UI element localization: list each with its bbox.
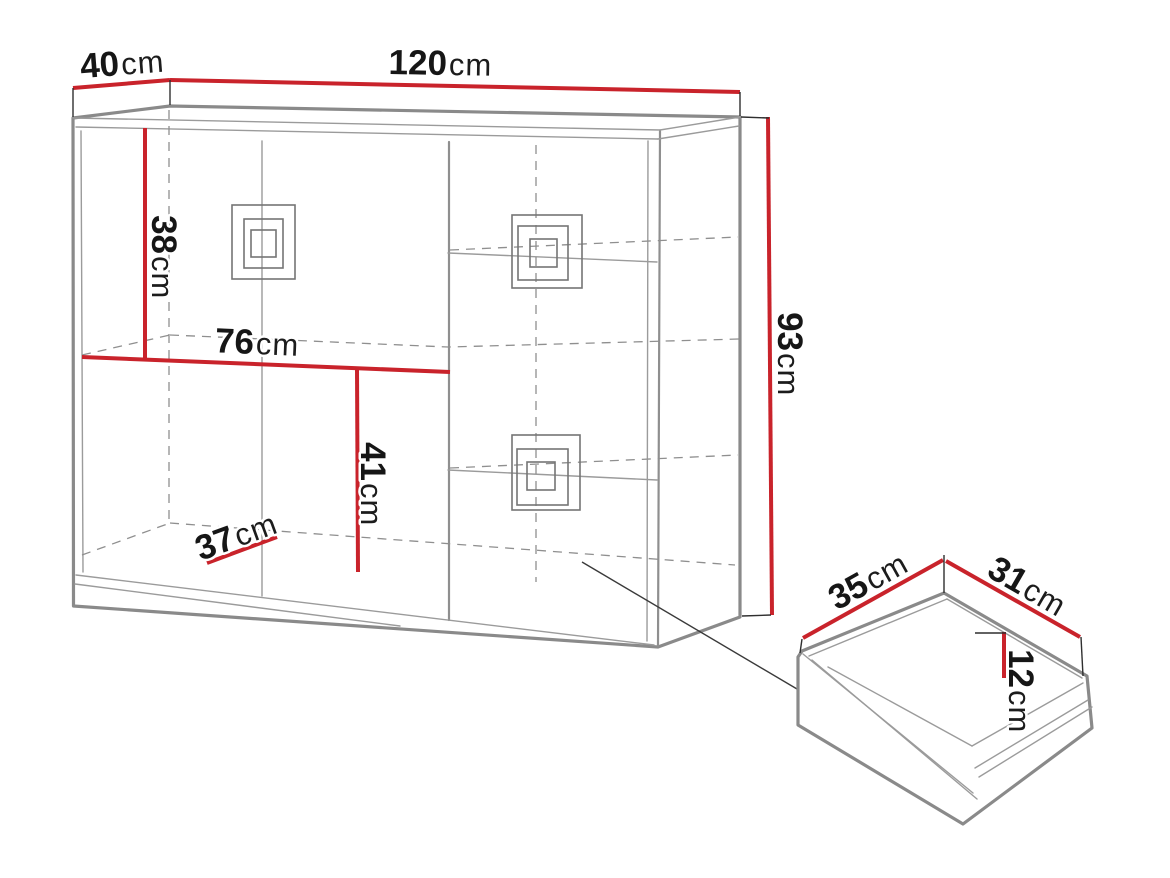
dimension-label-drawer-width: 35 cm (822, 543, 915, 618)
dimension-label-drawer-height: 12 cm (1001, 649, 1040, 733)
door-handle (232, 205, 295, 279)
dimension-lines (73, 80, 1080, 678)
drawer-leader-line (582, 562, 797, 689)
drawer-seam-1 (448, 253, 657, 262)
handle-middle-square (517, 449, 568, 505)
drawer-front-panel-inner-edge (812, 660, 977, 799)
handle-middle-square (244, 219, 283, 268)
handle-inner-square (251, 230, 276, 257)
dimension-label-drawer-depth: 31 cm (981, 549, 1073, 625)
dimension-value: 120 (388, 43, 447, 83)
diagram-canvas: 40 cm 120 cm 38 cm 76 cm 41 cm 37 cm 93 … (0, 0, 1170, 878)
dimension-label-left-section: 76 cm (214, 321, 300, 364)
hidden-edges (82, 110, 740, 582)
dimension-value: 93 (770, 312, 809, 351)
dimension-value: 40 (79, 44, 121, 86)
drawer-detail (798, 593, 1092, 824)
dimension-labels: 40 cm 120 cm 38 cm 76 cm 41 cm 37 cm 93 … (79, 41, 1074, 734)
dimension-unit: cm (1002, 690, 1037, 733)
drawer-left-rim-inner (809, 599, 947, 656)
dimension-label-depth: 40 cm (79, 41, 166, 86)
cabinet-front-face (75, 131, 657, 645)
shelf-left-depth-hidden (82, 335, 170, 355)
interior-left-wall-line (81, 131, 83, 572)
dimension-label-lower-section: 41 cm (353, 442, 392, 526)
dimension-unit: cm (354, 483, 389, 526)
dimension-unit: cm (229, 506, 282, 554)
dimension-label-height: 93 cm (770, 312, 809, 396)
dimension-unit: cm (449, 47, 493, 83)
floor-left-depth-hidden (82, 523, 170, 555)
cabinet-silhouette (73, 106, 740, 647)
dimension-unit: cm (145, 256, 180, 299)
dimension-label-width: 120 cm (388, 43, 492, 84)
handle-outer-square (512, 435, 580, 510)
cabinet-front-right-edge (658, 131, 660, 646)
drawer-silhouette (798, 593, 1092, 824)
dimension-label-upper-section: 38 cm (144, 215, 183, 299)
drawer1-bottom-hidden (450, 237, 738, 250)
cabinet-outline (73, 106, 740, 647)
dimension-value: 76 (214, 321, 255, 362)
bottom-drawer-handle (512, 435, 580, 510)
dimension-unit: cm (255, 326, 300, 363)
dimension-ticks (73, 80, 1083, 676)
drawer-seam-2 (448, 470, 657, 480)
front-bottom-edge (76, 575, 654, 645)
dimension-value: 41 (353, 442, 392, 481)
tick-height-bottom (742, 615, 771, 616)
tick-height-top (741, 117, 769, 118)
dimension-unit: cm (771, 353, 806, 396)
handle-inner-square (527, 462, 555, 490)
furniture-dimension-drawing: 40 cm 120 cm 38 cm 76 cm 41 cm 37 cm 93 … (0, 0, 1170, 878)
tick-drawer-right (1081, 637, 1083, 676)
dimension-unit: cm (120, 44, 166, 82)
dimension-value: 38 (144, 215, 183, 254)
cabinet-top-face (73, 117, 740, 139)
dimension-value: 12 (1001, 649, 1040, 688)
handle-inner-square (530, 239, 557, 267)
plinth-top-edge (75, 584, 400, 626)
handle-middle-square (518, 226, 568, 280)
drawer2-bottom-hidden (450, 455, 738, 468)
top-drawer-handle (512, 215, 582, 288)
drawer-fronts-right-edge (647, 141, 648, 641)
dimension-label-interior-depth: 37 cm (190, 503, 283, 568)
